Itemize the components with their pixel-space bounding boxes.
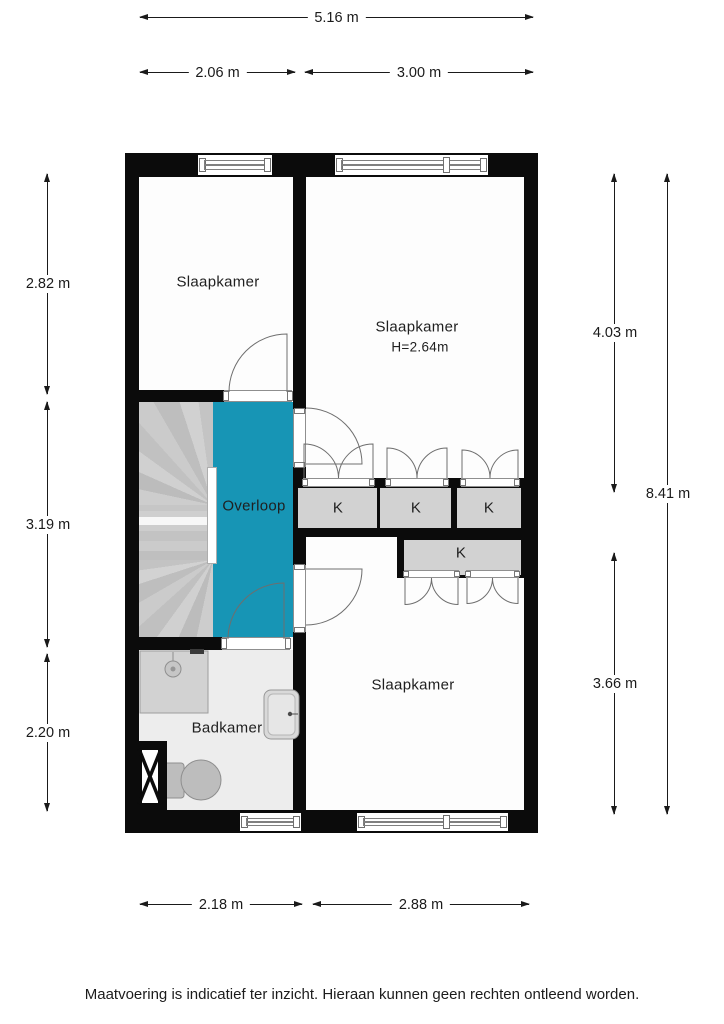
- landing-floor: [213, 402, 293, 637]
- dimension-top-right: 3.00 m: [304, 66, 534, 80]
- closet-1-door-opening: [303, 478, 374, 487]
- dimension-top-left: 2.06 m: [139, 66, 296, 80]
- interior-wall-middle-upper: [293, 153, 306, 409]
- window-bathroom: [240, 813, 301, 831]
- closet-label-3: K: [484, 500, 494, 517]
- door-opening-bathroom: [222, 637, 290, 650]
- dimension-bottom-left: 2.18 m: [139, 898, 303, 912]
- stair-treads-middle: [139, 505, 213, 560]
- dimension-left-top: 2.82 m: [41, 173, 55, 395]
- closet-4-door-opening-left: [404, 570, 459, 578]
- window-mullion: [443, 157, 450, 173]
- window-top-right: [335, 155, 488, 175]
- dimension-label: 3.19 m: [22, 516, 74, 534]
- dimension-bottom-right: 2.88 m: [312, 898, 530, 912]
- room-label-ceiling-height: H=2.64m: [391, 340, 448, 355]
- window-glazing: [204, 160, 266, 170]
- room-label-bedroom-top-right: Slaapkamer: [375, 319, 458, 336]
- closet-2-door-opening: [386, 478, 448, 487]
- door-opening-bedroom3: [293, 565, 306, 632]
- dimension-right-top: 4.03 m: [608, 173, 622, 493]
- dimension-top-total: 5.16 m: [139, 11, 534, 25]
- stair-winders-bottom: [139, 560, 213, 637]
- room-label-bathroom: Badkamer: [192, 720, 263, 737]
- room-label-landing: Overloop: [222, 498, 285, 515]
- dimension-label: 4.03 m: [589, 324, 641, 342]
- window-glazing: [341, 160, 482, 170]
- dimension-label: 2.82 m: [22, 275, 74, 293]
- dimension-label: 2.06 m: [188, 65, 246, 81]
- exterior-wall-right: [524, 153, 538, 833]
- dimension-left-middle: 3.19 m: [41, 401, 55, 648]
- closet-4-door-opening-right: [466, 570, 519, 578]
- interior-wall-middle-lower: [293, 632, 306, 810]
- dimension-label: 3.00 m: [390, 65, 448, 81]
- room-label-bedroom-bottom: Slaapkamer: [371, 677, 454, 694]
- dimension-label: 5.16 m: [307, 10, 365, 26]
- dimension-label: 8.41 m: [642, 485, 694, 503]
- closet-label-2: K: [411, 500, 421, 517]
- door-opening-bedroom2: [293, 409, 306, 467]
- dimension-left-bottom: 2.20 m: [41, 653, 55, 812]
- closet-label-4: K: [456, 545, 466, 562]
- stair-handrail: [207, 467, 217, 564]
- closet-3-door-opening: [461, 478, 519, 487]
- dimension-label: 3.66 m: [589, 675, 641, 693]
- dimension-label: 2.20 m: [22, 724, 74, 742]
- door-opening-bedroom1: [224, 390, 292, 402]
- room-label-bedroom-top-left: Slaapkamer: [176, 274, 259, 291]
- closet-label-1: K: [333, 500, 343, 517]
- exterior-wall-left: [125, 153, 139, 833]
- stair-winders-top: [139, 402, 213, 505]
- footer-disclaimer: Maatvoering is indicatief ter inzicht. H…: [0, 986, 724, 1003]
- dimension-right-total: 8.41 m: [661, 173, 675, 815]
- floor-plan-page: 5.16 m 2.06 m 3.00 m 2.82 m 3.19 m 2.20 …: [0, 0, 724, 1024]
- window-mullion: [443, 815, 450, 829]
- dimension-right-bottom: 3.66 m: [608, 552, 622, 815]
- interior-wall-bedroom1-landing: [125, 390, 225, 402]
- dimension-label: 2.18 m: [192, 897, 250, 913]
- interior-wall-landing-bathroom: [125, 637, 222, 650]
- window-glazing: [246, 818, 295, 826]
- window-top-left: [198, 155, 272, 175]
- dimension-label: 2.88 m: [392, 897, 450, 913]
- staircase: [139, 402, 213, 637]
- window-glazing: [363, 818, 502, 826]
- window-bottom-bedroom: [357, 813, 508, 831]
